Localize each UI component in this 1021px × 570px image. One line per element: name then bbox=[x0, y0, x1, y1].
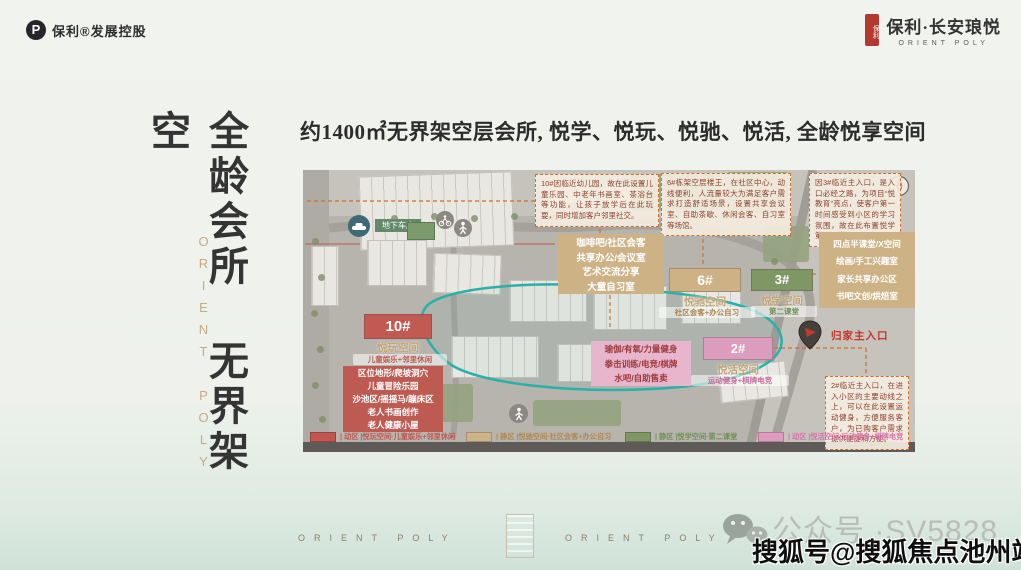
pedestrian-icon bbox=[509, 404, 528, 423]
note-building6: 6#栋架空层楼王，在社区中心，动线便利，人流量较大为满足客户需求打造舒适场景，设… bbox=[661, 173, 791, 236]
legend-label: | 静区 |悦驰空间·社区会客+办公自习 bbox=[496, 432, 611, 442]
page: P 保利®发展控股 保利 保利·长安琅悦 ORIENT POLY 全龄会所 无界… bbox=[0, 0, 1021, 570]
legend-swatch bbox=[625, 432, 651, 442]
amenity-line: 四点半课堂/X空间 bbox=[819, 238, 915, 250]
amenity-line: 拳击训练/电竞/棋牌 bbox=[591, 358, 691, 370]
cyclist-icon bbox=[436, 211, 454, 229]
note-building10: 10#因临近幼儿园，故在此设置儿童乐园、中老年书画室、茶浴台等功能，让孩子放学后… bbox=[535, 174, 659, 227]
legend-item-play: | 动区 |悦玩空间·儿童娱乐+邻里休闲 bbox=[310, 432, 455, 442]
building-10-space: 悦玩空间 bbox=[357, 340, 439, 355]
legend-item-active: | 动区 |悦活空间·运动健身+棋牌电竞 bbox=[758, 432, 903, 442]
footer-brand-left: ORIENT POLY bbox=[298, 533, 457, 543]
amenity-line: 区位地形/爬坡洞穴 bbox=[343, 367, 443, 379]
building-3-desc: 第二课堂 bbox=[751, 306, 817, 317]
building-6-badge: 6# bbox=[669, 268, 741, 292]
legend-swatch bbox=[310, 432, 336, 442]
poly-logo: P 保利®发展控股 bbox=[26, 20, 147, 40]
amenity-box-study: 四点半课堂/X空间 绘画/手工兴趣室 家长共享办公区 书吧文创/烘焙室 bbox=[819, 232, 915, 308]
amenity-line: 绘画/手工兴趣室 bbox=[819, 255, 915, 267]
poly-logo-icon: P bbox=[26, 20, 46, 40]
amenity-box-cafe: 咖啡吧/社区会客 共享办公/会议室 艺术交流分享 大童自习室 bbox=[558, 234, 664, 294]
amenity-line: 水吧/自助售卖 bbox=[591, 372, 691, 384]
amenity-line: 家长共享办公区 bbox=[819, 273, 915, 285]
amenity-line: 共享办公/会议室 bbox=[558, 250, 664, 264]
amenity-line: 书吧文创/烘焙室 bbox=[819, 290, 915, 302]
amenity-line: 大童自习室 bbox=[558, 279, 664, 293]
legend-item-study: | 静区 |悦学空间·第二课堂 bbox=[625, 432, 737, 442]
amenity-line: 老人健康小屋 bbox=[343, 419, 443, 431]
legend-label: | 动区 |悦活空间·运动健身+棋牌电竞 bbox=[788, 432, 903, 442]
building-3-badge: 3# bbox=[751, 269, 813, 291]
amenity-box-gym: 瑜伽/有氧/力量健身 拳击训练/电竞/棋牌 水吧/自助售卖 bbox=[591, 341, 691, 386]
amenity-box-play: 区位地形/爬坡洞穴 儿童冒险乐园 沙池区/摇摇马/蹦床区 老人书画创作 老人健康… bbox=[343, 366, 443, 432]
building-2-badge: 2# bbox=[703, 337, 773, 360]
building-10-badge: 10# bbox=[364, 314, 432, 339]
legend-label: | 静区 |悦学空间·第二课堂 bbox=[655, 432, 737, 442]
brand-block: 保利 保利·长安琅悦 ORIENT POLY bbox=[865, 13, 1001, 47]
pedestrian-icon bbox=[454, 219, 472, 237]
logo-text: 保利®发展控股 bbox=[52, 21, 147, 40]
vertical-brand: ORIENT POLY bbox=[196, 234, 211, 514]
legend-swatch bbox=[466, 432, 492, 442]
bike-shed-box bbox=[407, 222, 435, 240]
building-6-desc: 社区会客+办公自习 bbox=[659, 307, 755, 318]
footer-brand-right: ORIENT POLY bbox=[565, 533, 724, 543]
amenity-line: 咖啡吧/社区会客 bbox=[558, 235, 664, 249]
amenity-line: 艺术交流分享 bbox=[558, 264, 664, 278]
seal-icon: 保利 bbox=[865, 14, 879, 46]
site-plan: 地下车库 归家主入口 10#因临近幼儿园，故在此设置儿童乐园、中老年书画室、茶浴… bbox=[303, 170, 915, 452]
sohu-watermark: 搜狐号@搜狐焦点池州站 bbox=[752, 532, 1021, 569]
legend-label: | 动区 |悦玩空间·儿童娱乐+邻里休闲 bbox=[340, 432, 455, 442]
page-title: 约1400㎡无界架空层会所, 悦学、悦玩、悦驰、悦活, 全龄悦享空间 bbox=[300, 116, 926, 146]
legend-swatch bbox=[758, 432, 784, 442]
brand-subtitle: ORIENT POLY bbox=[886, 40, 1001, 47]
amenity-line: 沙池区/摇摇马/蹦床区 bbox=[343, 393, 443, 405]
building-2-desc: 运动健身+棋牌电竞 bbox=[691, 375, 789, 386]
building-10-desc: 儿童娱乐+邻里休闲 bbox=[353, 354, 447, 365]
amenity-line: 儿童冒险乐园 bbox=[343, 380, 443, 392]
entrance-pin-icon bbox=[797, 320, 823, 350]
legend-item-club: | 静区 |悦驰空间·社区会客+办公自习 bbox=[466, 432, 611, 442]
car-icon bbox=[348, 215, 370, 237]
amenity-line: 老人书画创作 bbox=[343, 406, 443, 418]
building-photo bbox=[506, 514, 534, 558]
entrance-label: 归家主入口 bbox=[831, 328, 889, 343]
amenity-line: 瑜伽/有氧/力量健身 bbox=[591, 343, 691, 355]
brand-name: 保利·长安琅悦 bbox=[886, 13, 1001, 38]
